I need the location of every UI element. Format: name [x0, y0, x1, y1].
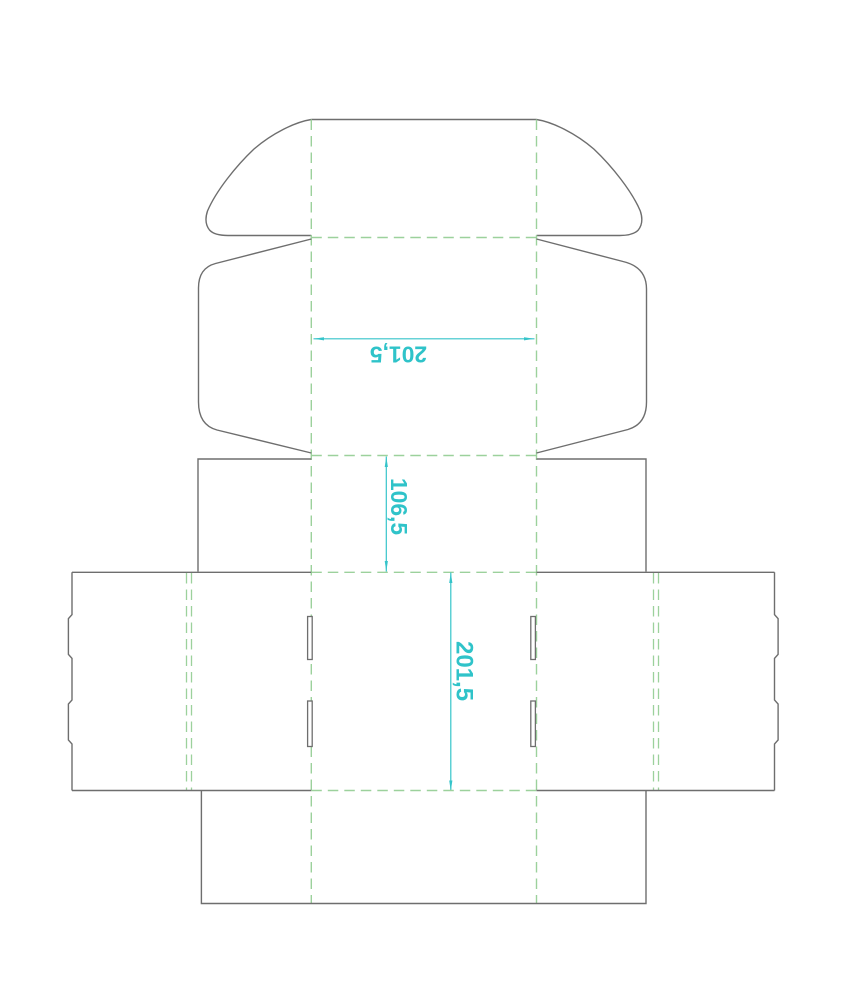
svg-text:106,5: 106,5: [386, 478, 412, 535]
svg-text:201,5: 201,5: [451, 641, 478, 701]
svg-text:201,5: 201,5: [370, 342, 427, 368]
